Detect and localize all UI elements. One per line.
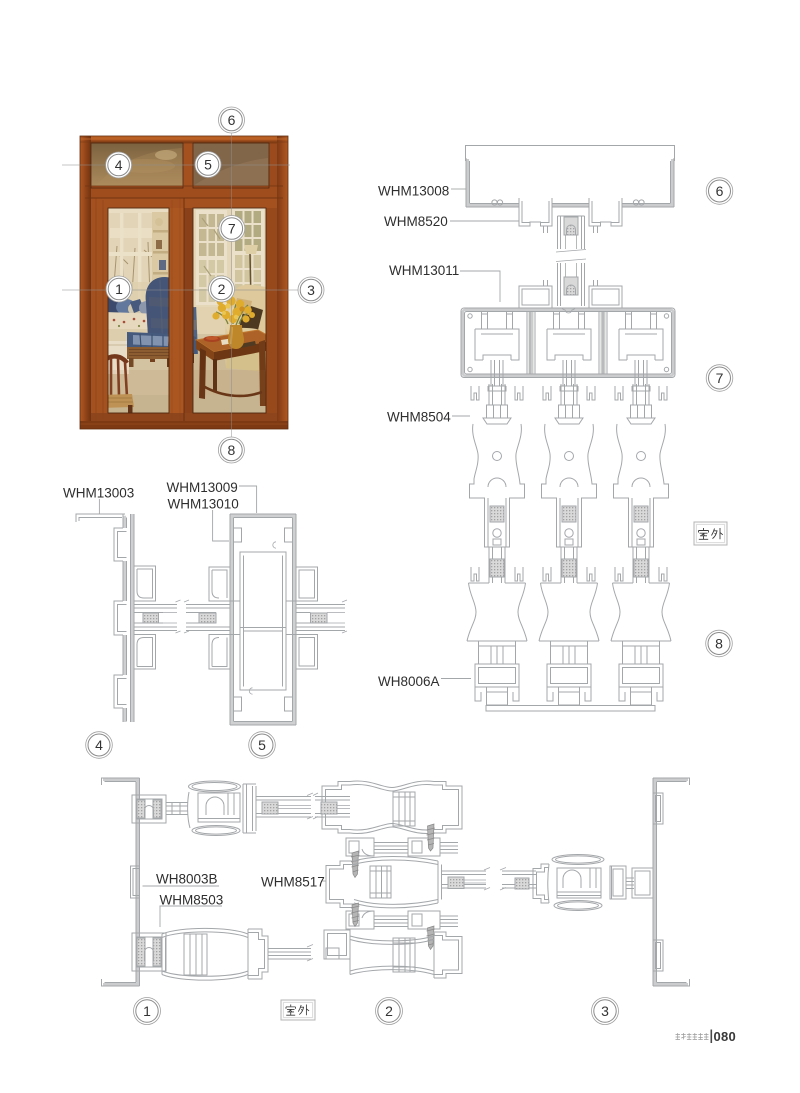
svg-text:WHM13003: WHM13003 [63,486,134,501]
svg-text:5: 5 [204,157,212,173]
svg-text:WH8006A: WH8006A [378,674,440,689]
svg-text:6: 6 [228,112,236,128]
svg-text:080: 080 [714,1029,737,1044]
svg-text:WHM13009: WHM13009 [167,480,238,495]
svg-text:WHM8520: WHM8520 [384,214,448,229]
svg-text:WHM8504: WHM8504 [387,410,451,425]
svg-text:WHM8503: WHM8503 [160,893,224,908]
svg-text:7: 7 [228,221,236,237]
svg-text:5: 5 [258,737,266,753]
svg-text:4: 4 [115,157,123,173]
svg-text:1: 1 [143,1003,151,1019]
svg-text:WHM13011: WHM13011 [389,263,459,278]
svg-text:3: 3 [601,1003,609,1019]
svg-text:6: 6 [716,183,724,199]
svg-text:WHM13008: WHM13008 [378,184,449,199]
svg-text:2: 2 [218,281,226,297]
svg-text:8: 8 [715,636,723,652]
svg-text:WH8003B: WH8003B [156,872,218,887]
svg-text:4: 4 [95,737,103,753]
svg-text:3: 3 [307,282,315,298]
svg-text:8: 8 [228,442,236,458]
svg-text:7: 7 [716,370,724,386]
svg-text:WHM13010: WHM13010 [168,497,239,512]
svg-text:1: 1 [115,281,123,297]
svg-text:2: 2 [385,1003,393,1019]
svg-text:WHM8517: WHM8517 [261,875,325,890]
